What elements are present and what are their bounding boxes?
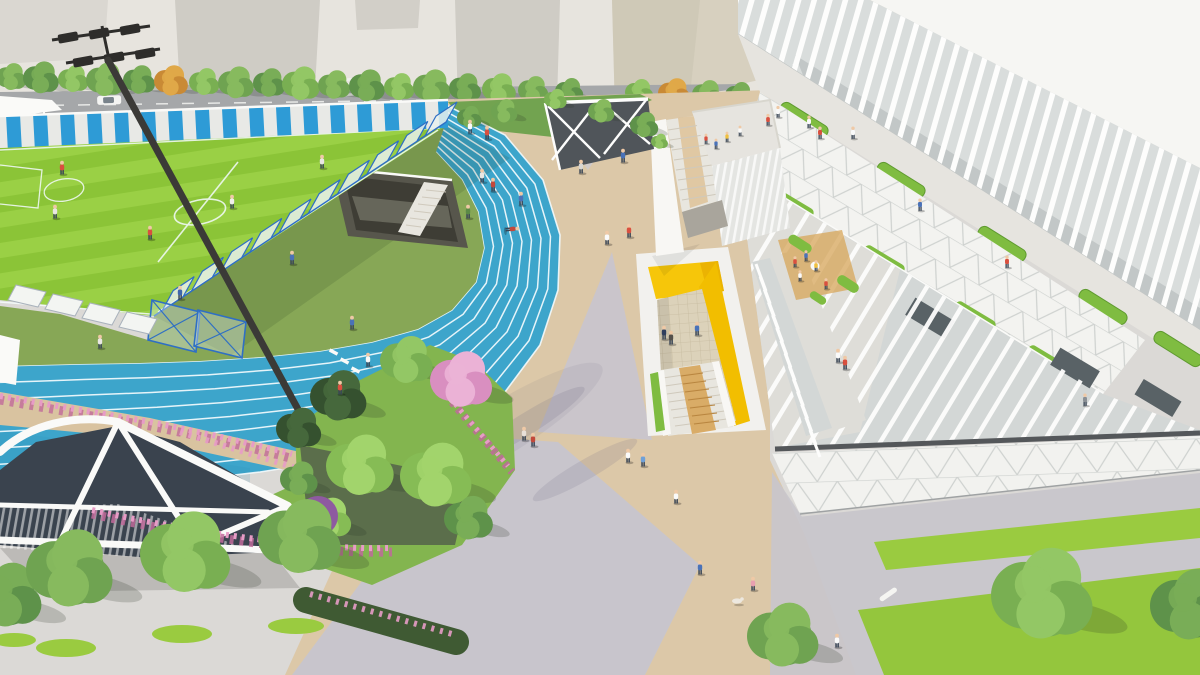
background-block [355,0,420,30]
architectural-render-canvas: Aerial 3D architectural rendering of a s… [0,0,1200,675]
car [97,95,121,105]
